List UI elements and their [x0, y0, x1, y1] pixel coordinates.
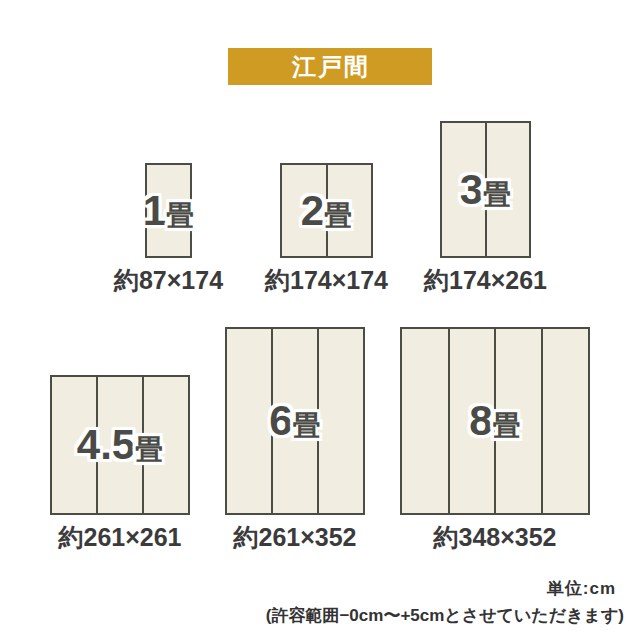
- mat-count-number: 8: [469, 397, 492, 444]
- mat-dimensions-8jo: 約348×352: [433, 524, 556, 552]
- mat-count-unit: 畳: [493, 410, 521, 441]
- mat-count-unit: 畳: [293, 410, 321, 441]
- tatami-size-label-8jo: 8畳: [469, 400, 520, 442]
- mat-count-unit: 畳: [166, 200, 194, 231]
- tatami-size-label-6jo: 6畳: [269, 400, 320, 442]
- size-standard-badge: 江戸間: [228, 48, 432, 85]
- mat-dimensions-2jo: 約174×174: [265, 267, 388, 295]
- unit-label: 単位:cm: [547, 577, 616, 600]
- tatami-size-chart: 江戸間 1畳約87×1742畳約174×1743畳約174×2614.5畳約26…: [0, 0, 640, 640]
- tatami-size-label-4-5jo: 4.5畳: [77, 424, 163, 466]
- mat-count-number: 2: [301, 187, 324, 234]
- mat-dimensions-4-5jo: 約261×261: [58, 524, 181, 552]
- mat-count-number: 6: [269, 397, 292, 444]
- size-standard-label: 江戸間: [290, 55, 370, 79]
- mat-count-number: 4.5: [77, 421, 135, 468]
- tatami-size-label-1jo: 1畳: [143, 190, 194, 232]
- tatami-seam: [448, 329, 450, 513]
- tatami-seam: [541, 329, 543, 513]
- mat-count-number: 1: [143, 187, 166, 234]
- tolerance-note: (許容範囲−0cm〜+5cmとさせていただきます): [266, 604, 624, 627]
- tatami-size-label-2jo: 2畳: [301, 190, 352, 232]
- mat-count-unit: 畳: [483, 179, 511, 210]
- tatami-size-label-3jo: 3畳: [460, 169, 511, 211]
- mat-count-unit: 畳: [135, 434, 163, 465]
- mat-count-unit: 畳: [324, 200, 352, 231]
- mat-dimensions-3jo: 約174×261: [424, 267, 547, 295]
- mat-dimensions-1jo: 約87×174: [114, 267, 223, 295]
- mat-count-number: 3: [460, 166, 483, 213]
- mat-dimensions-6jo: 約261×352: [233, 524, 356, 552]
